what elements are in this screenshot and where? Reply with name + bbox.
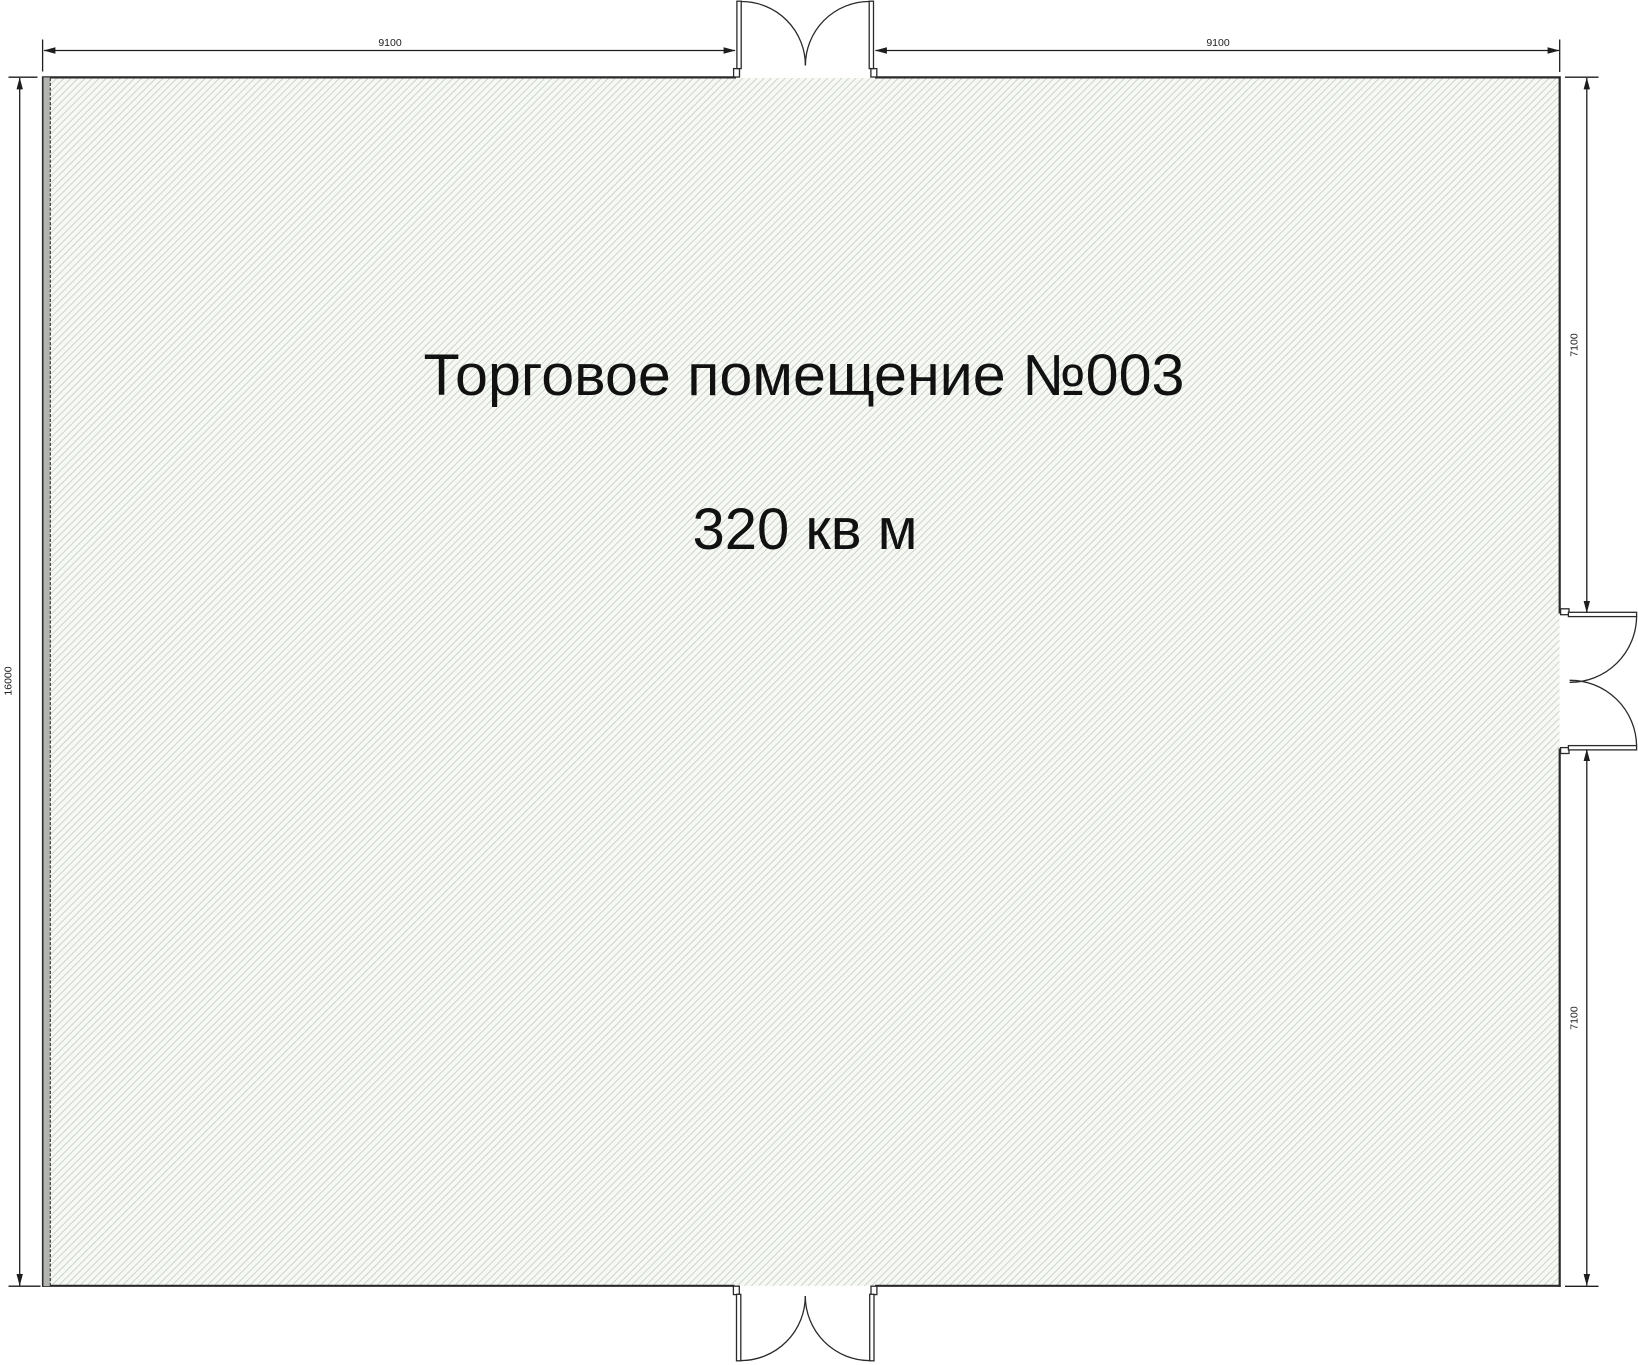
svg-text:9100: 9100 — [378, 37, 402, 49]
svg-text:7100: 7100 — [1568, 333, 1580, 357]
svg-text:16000: 16000 — [2, 666, 14, 695]
svg-text:9100: 9100 — [1206, 37, 1230, 49]
svg-text:7100: 7100 — [1568, 1006, 1580, 1030]
svg-text:320 кв м: 320 кв м — [693, 497, 918, 562]
svg-text:Торговое помещение №003: Торговое помещение №003 — [424, 343, 1185, 408]
